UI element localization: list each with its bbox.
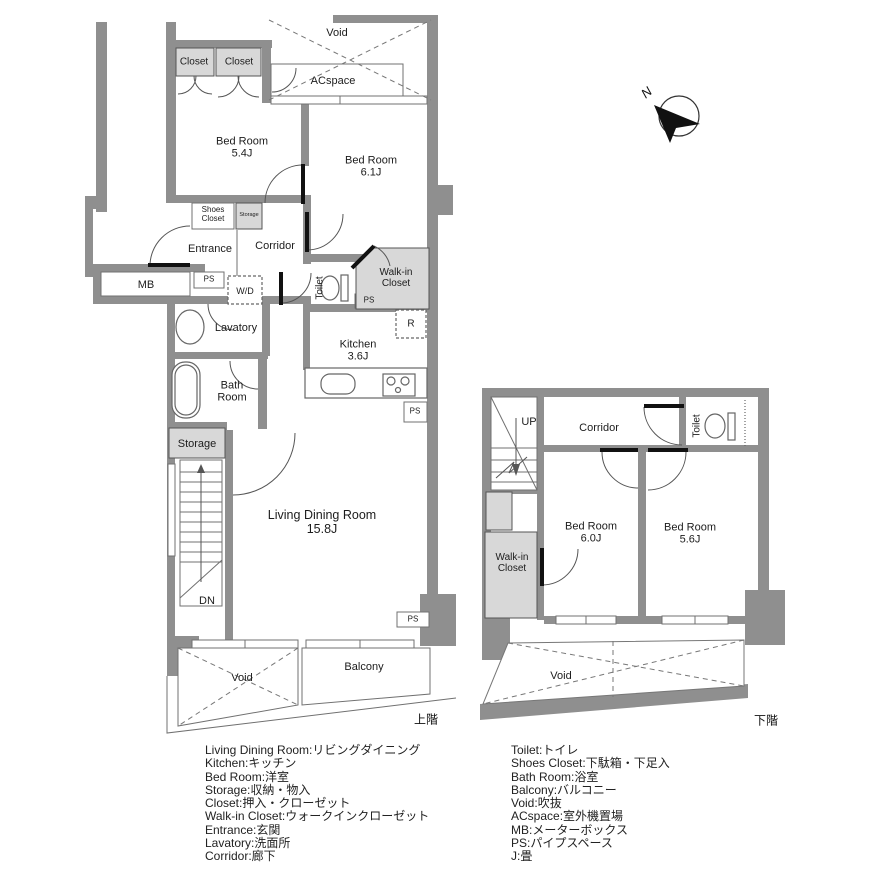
label-ps-1: PS bbox=[204, 276, 215, 285]
caption-upper-floor: 上階 bbox=[414, 713, 438, 726]
compass bbox=[654, 96, 700, 143]
legend-entry: Walk-in Closet:ウォークインクローゼット bbox=[205, 810, 429, 823]
label-mb: MB bbox=[138, 279, 155, 291]
legend-entry: Storage:収納・物入 bbox=[205, 784, 429, 797]
label-storage-upper: Storage bbox=[178, 438, 217, 450]
label-void-top: Void bbox=[326, 27, 347, 39]
label-toilet-upper: Toilet bbox=[314, 276, 325, 299]
label-bedroom-6-1: Bed Room 6.1J bbox=[345, 155, 397, 180]
legend-entry: Shoes Closet:下駄箱・下足入 bbox=[511, 757, 670, 770]
label-entrance: Entrance bbox=[188, 243, 232, 255]
floorplan-page: Closet Closet Void ACspace Bed Room 5.4J… bbox=[0, 0, 872, 872]
label-walkin-upper: Walk-in Closet bbox=[380, 267, 413, 289]
label-bedroom-6-0: Bed Room 6.0J bbox=[565, 521, 617, 546]
upper-walls bbox=[85, 15, 456, 676]
legend-entry: Entrance:玄関 bbox=[205, 824, 429, 837]
legend-entry: Kitchen:キッチン bbox=[205, 757, 429, 770]
label-corridor-upper: Corridor bbox=[255, 240, 295, 252]
lower-fixtures bbox=[705, 400, 745, 448]
label-kitchen: Kitchen 3.6J bbox=[340, 339, 377, 364]
label-lavatory: Lavatory bbox=[215, 322, 257, 334]
label-ps-4: PS bbox=[408, 616, 419, 625]
stairs-up bbox=[491, 397, 537, 490]
upper-floor-plan bbox=[85, 15, 456, 733]
legend-entry: Bed Room:洋室 bbox=[205, 771, 429, 784]
label-bedroom-5-6: Bed Room 5.6J bbox=[664, 522, 716, 547]
label-bedroom-5-4: Bed Room 5.4J bbox=[216, 136, 268, 161]
label-corridor-lower: Corridor bbox=[579, 422, 619, 434]
label-wd: W/D bbox=[236, 286, 254, 296]
label-walkin-lower: Walk-in Closet bbox=[496, 552, 529, 574]
toilet-tank-upper bbox=[341, 275, 348, 301]
caption-lower-floor: 下階 bbox=[754, 714, 778, 727]
legend-entry: Living Dining Room:リビングダイニング bbox=[205, 744, 429, 757]
basin-icon bbox=[176, 310, 204, 344]
label-bathroom: Bath Room bbox=[217, 380, 246, 405]
legend-entry: Corridor:廊下 bbox=[205, 850, 429, 863]
label-void-lower: Void bbox=[550, 670, 571, 682]
stairs-down bbox=[180, 460, 222, 606]
legend-entry: Closet:押入・クローゼット bbox=[205, 797, 429, 810]
label-storage-mini: Storage bbox=[239, 212, 258, 218]
legend-right-column: Toilet:トイレ Shoes Closet:下駄箱・下足入 Bath Roo… bbox=[511, 744, 670, 864]
legend-entry: J:畳 bbox=[511, 850, 670, 863]
legend-entry: Balcony:バルコニー bbox=[511, 784, 670, 797]
label-void-bottom: Void bbox=[231, 672, 252, 684]
toilet-tank-lower bbox=[728, 413, 735, 440]
legend-left-column: Living Dining Room:リビングダイニング Kitchen:キッチ… bbox=[205, 744, 429, 864]
label-stairs-dn: DN bbox=[199, 595, 215, 607]
legend-entry: MB:メーターボックス bbox=[511, 824, 670, 837]
label-fridge: R bbox=[407, 318, 414, 329]
label-closet-right: Closet bbox=[225, 56, 253, 67]
legend-entry: PS:パイプスペース bbox=[511, 837, 670, 850]
legend-entry: ACspace:室外機置場 bbox=[511, 810, 670, 823]
legend-entry: Bath Room:浴室 bbox=[511, 771, 670, 784]
label-ps-2: PS bbox=[364, 297, 375, 306]
floorplan-drawing bbox=[0, 0, 872, 872]
label-acspace: ACspace bbox=[311, 75, 356, 87]
label-stairs-up: UP bbox=[521, 416, 536, 428]
label-closet-left: Closet bbox=[180, 56, 208, 67]
label-ps-3: PS bbox=[410, 408, 421, 417]
toilet-icon-lower bbox=[705, 414, 725, 438]
label-toilet-lower: Toilet bbox=[691, 414, 702, 437]
label-balcony: Balcony bbox=[344, 661, 383, 673]
label-shoes-closet: Shoes Closet bbox=[202, 206, 225, 224]
sink-icon bbox=[321, 374, 355, 394]
label-living-dining: Living Dining Room 15.8J bbox=[268, 508, 376, 536]
